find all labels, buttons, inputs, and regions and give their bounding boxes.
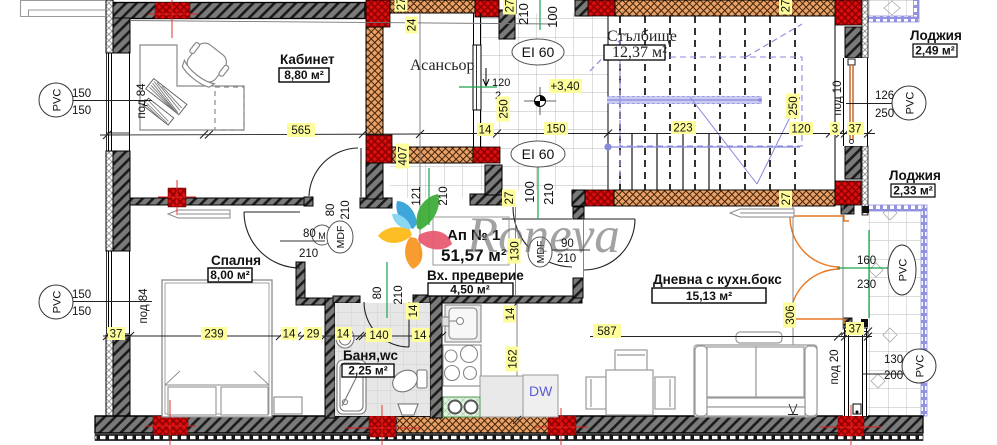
svg-text:PVC: PVC — [52, 291, 64, 314]
svg-text:под 10: под 10 — [832, 80, 844, 115]
svg-text:27: 27 — [505, 0, 517, 12]
svg-text:230: 230 — [857, 279, 876, 291]
svg-text:126: 126 — [875, 90, 894, 102]
svg-text:223: 223 — [673, 123, 692, 135]
svg-text:Баня,wc: Баня,wc — [343, 348, 398, 363]
svg-text:90: 90 — [561, 238, 574, 250]
svg-text:150: 150 — [72, 306, 91, 318]
svg-text:8,80 м²: 8,80 м² — [284, 68, 324, 82]
svg-text:37: 37 — [110, 329, 123, 341]
svg-text:EI 60: EI 60 — [522, 146, 555, 162]
svg-text:210: 210 — [438, 186, 450, 205]
svg-text:MDF: MDF — [335, 226, 347, 249]
svg-text:120: 120 — [791, 124, 810, 136]
svg-text:2,49 м²: 2,49 м² — [915, 44, 955, 58]
svg-text:250: 250 — [499, 99, 511, 118]
svg-text:250: 250 — [875, 108, 894, 120]
svg-text:210: 210 — [340, 200, 352, 219]
svg-text:3: 3 — [832, 124, 838, 136]
svg-text:под 84: под 84 — [136, 83, 148, 119]
svg-text:2,33 м²: 2,33 м² — [893, 184, 933, 198]
svg-text:Дневна с кухн.бокс: Дневна с кухн.бокс — [653, 272, 782, 287]
svg-text:210: 210 — [516, 3, 531, 25]
svg-text:Лоджия: Лоджия — [910, 28, 962, 43]
svg-text:27: 27 — [781, 0, 793, 12]
svg-text:Roneva: Roneva — [466, 208, 620, 264]
svg-text:14: 14 — [337, 329, 350, 341]
svg-text:306: 306 — [785, 305, 797, 324]
svg-text:15,13 м²: 15,13 м² — [686, 289, 732, 303]
svg-text:4,50 м²: 4,50 м² — [450, 283, 490, 297]
svg-text:Кабинет: Кабинет — [280, 52, 335, 67]
svg-text:24: 24 — [407, 18, 419, 31]
svg-text:PVC: PVC — [898, 259, 910, 282]
svg-text:Спалня: Спалня — [211, 253, 261, 268]
svg-text:PVC: PVC — [905, 92, 917, 115]
svg-text:под 84: под 84 — [138, 288, 150, 324]
svg-text:210: 210 — [557, 253, 576, 265]
svg-text:150: 150 — [72, 289, 91, 301]
svg-text:29: 29 — [307, 329, 320, 341]
svg-text:160: 160 — [857, 255, 876, 267]
svg-text:14: 14 — [479, 125, 492, 137]
svg-text:130: 130 — [884, 354, 903, 366]
svg-text:M: M — [318, 231, 326, 241]
svg-text:+3,40: +3,40 — [550, 81, 579, 93]
svg-text:37: 37 — [849, 324, 862, 336]
svg-text:162: 162 — [508, 349, 520, 368]
svg-text:2,25 м²: 2,25 м² — [348, 364, 388, 378]
svg-text:130: 130 — [510, 241, 522, 260]
svg-text:27: 27 — [504, 192, 516, 205]
svg-text:14: 14 — [505, 307, 517, 320]
svg-text:80: 80 — [303, 228, 316, 240]
svg-text:37: 37 — [849, 124, 862, 136]
svg-text:210: 210 — [541, 183, 556, 205]
svg-text:239: 239 — [204, 329, 223, 341]
svg-text:150: 150 — [72, 88, 91, 100]
svg-text:14: 14 — [414, 330, 427, 342]
svg-text:DW: DW — [529, 383, 553, 399]
svg-text:565: 565 — [291, 125, 310, 137]
svg-text:Лоджия: Лоджия — [889, 168, 941, 183]
svg-text:80: 80 — [372, 287, 384, 300]
svg-text:под 20: под 20 — [829, 349, 841, 384]
svg-text:587: 587 — [597, 326, 616, 338]
svg-text:150: 150 — [72, 105, 91, 117]
svg-text:Стълбище: Стълбище — [607, 28, 677, 45]
svg-text:Вх. предверие: Вх. предверие — [427, 268, 524, 283]
svg-text:100: 100 — [545, 6, 560, 28]
svg-text:210: 210 — [393, 285, 405, 304]
svg-text:12,37 м²: 12,37 м² — [612, 44, 667, 61]
svg-text:140: 140 — [369, 330, 388, 342]
svg-text:210: 210 — [299, 248, 318, 260]
svg-text:150: 150 — [546, 124, 565, 136]
svg-text:PVC: PVC — [52, 89, 64, 112]
svg-text:EI 60: EI 60 — [522, 44, 555, 60]
svg-text:14: 14 — [283, 329, 296, 341]
svg-text:PVC: PVC — [915, 355, 927, 378]
svg-text:100: 100 — [522, 181, 537, 203]
svg-text:8,00 м²: 8,00 м² — [210, 268, 250, 282]
svg-text:80: 80 — [325, 204, 337, 217]
svg-text:27: 27 — [396, 0, 408, 10]
svg-text:27: 27 — [781, 193, 793, 206]
svg-text:121: 121 — [411, 186, 423, 205]
svg-text:407: 407 — [398, 146, 410, 165]
svg-text:250: 250 — [788, 96, 800, 115]
svg-text:200: 200 — [884, 370, 903, 382]
svg-text:14: 14 — [408, 304, 420, 317]
